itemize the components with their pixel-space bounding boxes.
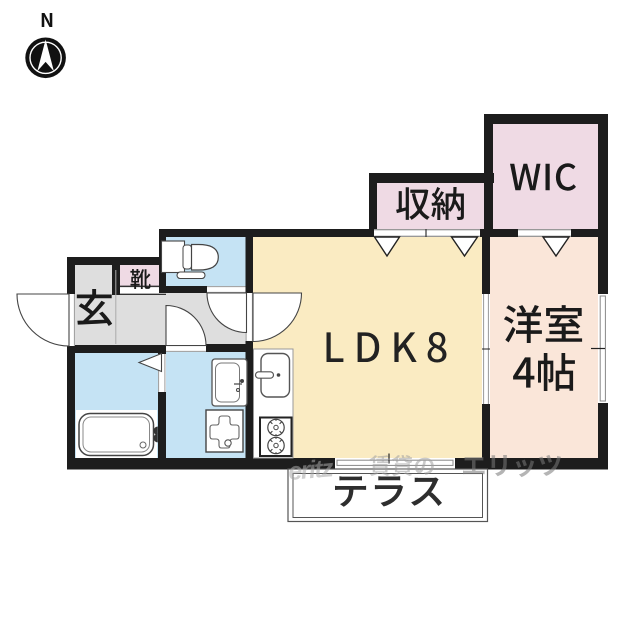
- svg-text:eritz: eritz: [287, 454, 335, 486]
